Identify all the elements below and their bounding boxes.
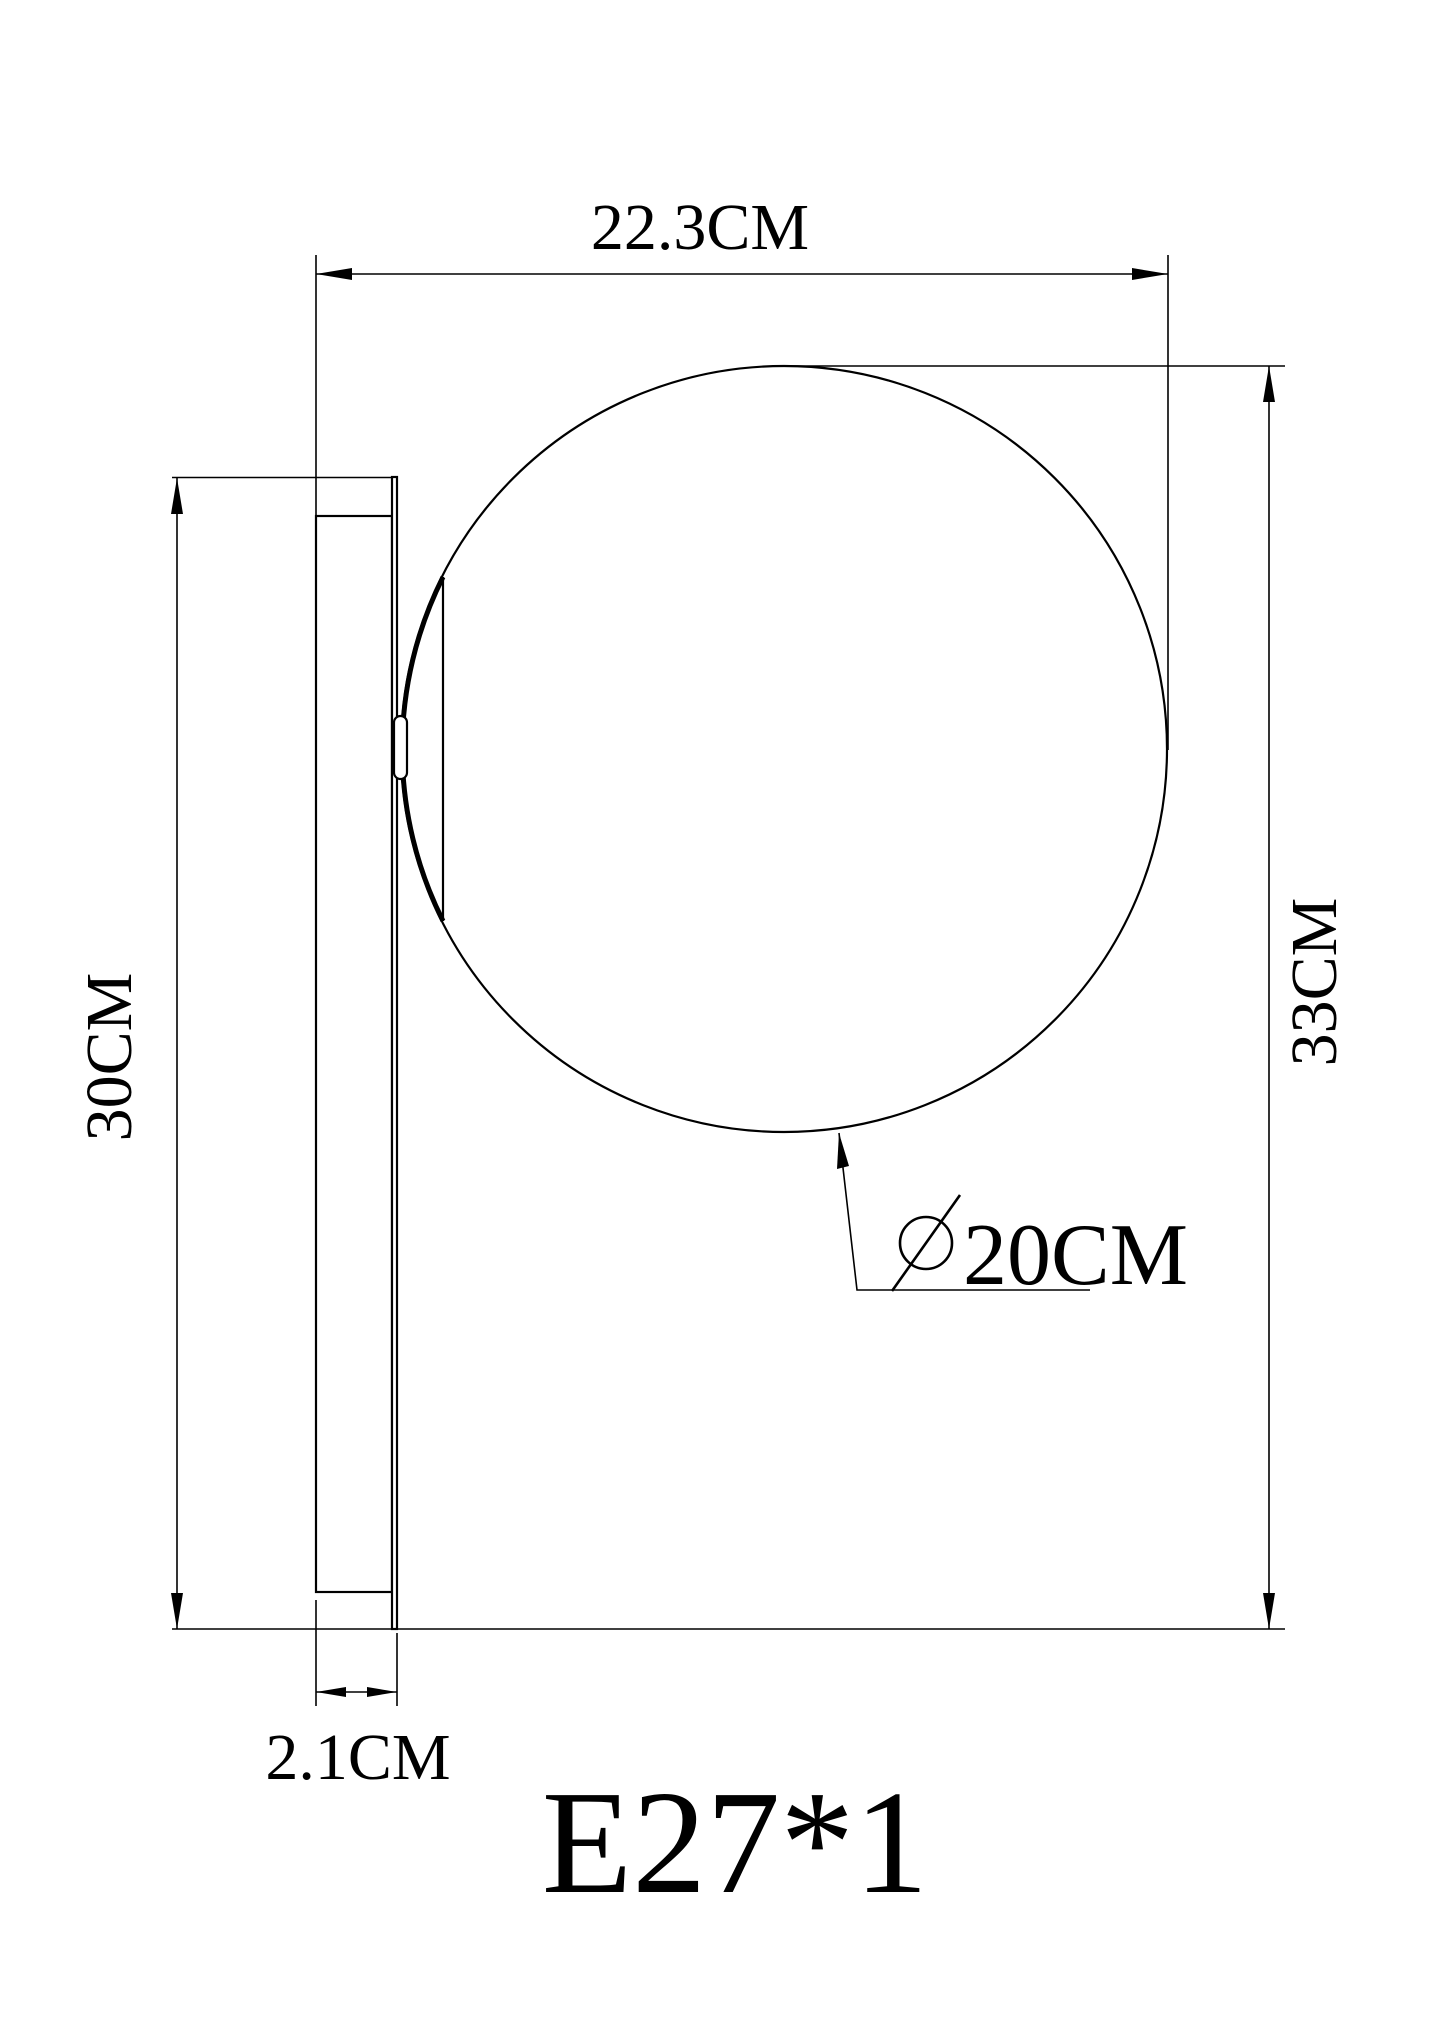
- arrowhead-right: [367, 1687, 397, 1697]
- wall-plate: [316, 477, 407, 1629]
- globe-diameter-label: 20CM: [963, 1207, 1188, 1304]
- diameter-symbol-slash: [892, 1195, 960, 1291]
- diameter-symbol-icon: [892, 1195, 960, 1291]
- arrowhead: [837, 1133, 849, 1169]
- arrowhead-top: [171, 478, 183, 514]
- socket-cup-arc: [402, 577, 443, 921]
- arrowhead-left: [316, 1687, 346, 1697]
- arrowhead-right: [1132, 268, 1168, 280]
- total-height-label: 33CM: [1278, 898, 1351, 1067]
- arrowhead-top: [1263, 366, 1275, 402]
- plate-depth-label: 2.1CM: [265, 1721, 450, 1794]
- connector-stem: [394, 716, 407, 779]
- plate-front-cover: [392, 477, 397, 1629]
- plate-height-label: 30CM: [73, 973, 146, 1142]
- arrowhead-bottom: [171, 1593, 183, 1629]
- socket-type-label: E27*1: [542, 1761, 928, 1925]
- globe-outline: [401, 366, 1167, 1132]
- leader-diameter: 20CM: [837, 1133, 1188, 1304]
- dim-plate-height: 30CM: [73, 478, 1285, 1630]
- socket-label: E27*1: [542, 1761, 928, 1925]
- width-label: 22.3CM: [591, 191, 809, 264]
- arrowhead-bottom: [1263, 1593, 1275, 1629]
- dim-total-height: 33CM: [784, 366, 1351, 1629]
- globe: [401, 366, 1167, 1132]
- arrowhead-left: [316, 268, 352, 280]
- plate-body: [316, 516, 392, 1592]
- drawing-canvas: 22.3CM 33CM 30CM 2.1CM: [0, 0, 1445, 2043]
- lamp-dimension-drawing: 22.3CM 33CM 30CM 2.1CM: [0, 0, 1445, 2043]
